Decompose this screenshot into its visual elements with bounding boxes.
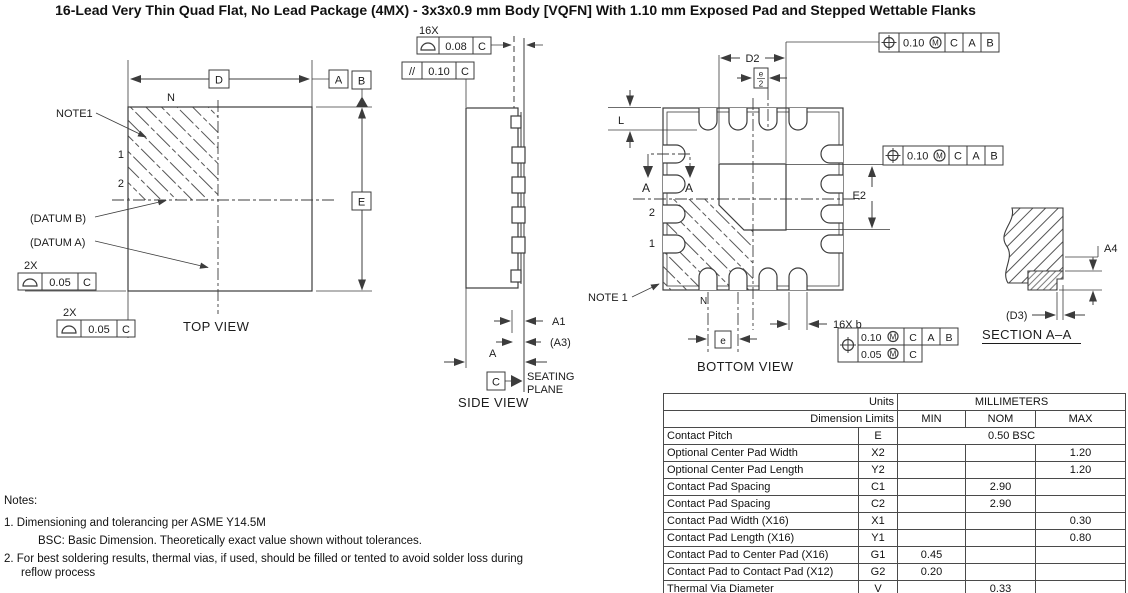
cell-span-value: 0.50 BSC [898, 428, 1126, 445]
position-tolerance-frame-pads: 0.10 M C A B 0.05 M C [838, 328, 958, 362]
tol-datum: C [950, 38, 958, 50]
cell-name: Optional Center Pad Length [664, 462, 859, 479]
tol-value: 0.05 [861, 349, 882, 361]
datum-b-ref: (DATUM B) [30, 213, 86, 225]
tol-datum: B [945, 332, 952, 344]
dimension-limits-header: Dimension Limits [664, 411, 898, 428]
qty-label: 2X [24, 260, 38, 272]
cell-name: Thermal Via Diameter [664, 581, 859, 593]
dimension-table: Units MILLIMETERS Dimension Limits MIN N… [663, 393, 1126, 593]
tol-datum: C [954, 151, 962, 163]
tol-datum: B [986, 38, 993, 50]
half-pitch-den: 2 [759, 80, 764, 89]
tol-value: 0.05 [88, 324, 109, 336]
seating-plane-label-1: SEATING [527, 371, 574, 383]
lead-end [511, 116, 521, 128]
table-row: Contact Pad to Contact Pad (X12) G2 0.20 [664, 564, 1126, 581]
cell-max: 1.20 [1036, 462, 1126, 479]
fcf-cell [417, 37, 439, 54]
cell-max [1036, 564, 1126, 581]
qty-label: 2X [63, 307, 77, 319]
tol-datum: A [968, 38, 976, 50]
fcf-cell [18, 273, 42, 290]
tol-value: 0.10 [907, 151, 928, 163]
datum-a-leader [95, 241, 208, 268]
datum-a-ref: (DATUM A) [30, 237, 85, 249]
cell-max: 1.20 [1036, 445, 1126, 462]
datum-b-triangle-icon [356, 97, 368, 108]
table-row: Optional Center Pad Length Y2 1.20 [664, 462, 1126, 479]
cell-name: Optional Center Pad Width [664, 445, 859, 462]
datum-a-label: A [335, 75, 343, 87]
cell-name: Contact Pad to Contact Pad (X12) [664, 564, 859, 581]
note-item-1: 1. Dimensioning and tolerancing per ASME… [4, 514, 604, 532]
cell-nom [966, 530, 1036, 547]
dim-a-label: A [489, 348, 497, 360]
contact-pad [821, 205, 843, 223]
svg-text:M: M [936, 152, 943, 161]
extension-lines-b [789, 292, 807, 330]
tol-value: 0.10 [861, 332, 882, 344]
tol-datum: C [122, 324, 130, 336]
note-item-2-cont: reflow process [4, 566, 604, 580]
datum-b-label: B [358, 76, 365, 88]
cell-nom: 2.90 [966, 496, 1036, 513]
tol-datum: C [461, 66, 469, 78]
dim-a1-label: A1 [552, 316, 565, 328]
top-view: D A B E N 1 2 NOTE1 (DATUM B) (DATUM A) [18, 60, 372, 338]
lead [512, 177, 525, 193]
position-tolerance-frame-right: 0.10 M C A B [883, 146, 1003, 165]
contact-pad [789, 268, 807, 290]
tol-datum: C [83, 277, 91, 289]
contact-pad [699, 268, 717, 290]
half-pitch-num: e [759, 70, 764, 79]
tol-datum: C [478, 41, 486, 53]
svg-text:M: M [890, 333, 897, 342]
cell-min [898, 479, 966, 496]
table-row: Thermal Via Diameter V 0.33 [664, 581, 1126, 593]
notes-heading: Notes: [4, 492, 604, 510]
contact-pad [663, 205, 685, 223]
contact-pad [821, 145, 843, 163]
seating-plane-label-2: PLANE [527, 384, 563, 396]
cell-max [1036, 581, 1126, 593]
table-row: Optional Center Pad Width X2 1.20 [664, 445, 1126, 462]
cell-symbol: G1 [859, 547, 898, 564]
tol-value: 0.10 [428, 66, 449, 78]
stepped-lead-cross-section [1028, 271, 1063, 290]
cell-max [1036, 496, 1126, 513]
dim-e-label: E [358, 197, 365, 209]
profile-tolerance-frame-left: 2X 0.05 C [57, 307, 135, 337]
section-arrow-icon [685, 166, 695, 178]
table-row: Contact Pad Length (X16) Y1 0.80 [664, 530, 1126, 547]
cell-name: Contact Pad Spacing [664, 479, 859, 496]
note1-ref: NOTE1 [56, 108, 93, 120]
pitch-label: e [720, 336, 726, 347]
bottom-view: D2 e 2 0.10 [588, 33, 1003, 374]
cell-symbol: C2 [859, 496, 898, 513]
cell-min [898, 496, 966, 513]
table-header-row: Units MILLIMETERS [664, 394, 1126, 411]
lead [512, 237, 525, 253]
svg-text:M: M [890, 350, 897, 359]
contact-pad [821, 175, 843, 193]
lead [512, 147, 525, 163]
package-outline-side [466, 108, 518, 288]
note-item-2: 2. For best soldering results, thermal v… [4, 552, 604, 566]
contact-pad [729, 268, 747, 290]
tol-datum: B [990, 151, 997, 163]
cell-min [898, 445, 966, 462]
contact-pad [789, 108, 807, 130]
parallelism-tolerance-frame: // 0.10 C [402, 62, 474, 79]
pin1-label: 1 [649, 238, 655, 250]
table-row: Contact Pad Width (X16) X1 0.30 [664, 513, 1126, 530]
position-tolerance-frame-top: 0.10 M C A B [879, 33, 999, 52]
profile-tolerance-frame-16x: 0.08 C [417, 37, 491, 54]
section-view-caption: SECTION A–A [982, 327, 1072, 342]
fcf-cell [57, 320, 81, 337]
cell-symbol: Y1 [859, 530, 898, 547]
tol-value: 0.05 [49, 277, 70, 289]
pin-n-label: N [167, 92, 175, 104]
dim-a3-label: (A3) [550, 337, 571, 349]
side-view: 16X 0.08 C // 0.10 C [402, 25, 574, 410]
mechanical-drawing: D A B E N 1 2 NOTE1 (DATUM B) (DATUM A) [0, 0, 1128, 420]
lead [512, 207, 525, 223]
contact-pad [663, 235, 685, 253]
side-view-caption: SIDE VIEW [458, 395, 529, 410]
pin2-label: 2 [118, 178, 124, 190]
cell-nom [966, 445, 1036, 462]
cell-min [898, 513, 966, 530]
table-row: Contact Pad to Center Pad (X16) G1 0.45 [664, 547, 1126, 564]
svg-text:M: M [932, 39, 939, 48]
cell-nom [966, 547, 1036, 564]
nom-header: NOM [966, 411, 1036, 428]
cell-name: Contact Pad Width (X16) [664, 513, 859, 530]
lead-end [511, 270, 521, 282]
tol-value: 0.10 [903, 38, 924, 50]
cell-nom: 0.33 [966, 581, 1036, 593]
datum-c-triangle-icon [511, 375, 523, 387]
datum-c-label: C [492, 377, 500, 389]
cell-symbol: V [859, 581, 898, 593]
cell-min [898, 530, 966, 547]
table-row: Contact Pitch E 0.50 BSC [664, 428, 1126, 445]
profile-tolerance-frame-top: 2X 0.05 C [18, 260, 96, 290]
cell-symbol: G2 [859, 564, 898, 581]
section-view: A4 (D3) SECTION A–A [982, 208, 1117, 344]
cell-nom [966, 462, 1036, 479]
pin1-hatch-area [128, 107, 218, 200]
table-row: Contact Pad Spacing C1 2.90 [664, 479, 1126, 496]
table-row: Contact Pad Spacing C2 2.90 [664, 496, 1126, 513]
cell-nom [966, 513, 1036, 530]
cell-name: Contact Pitch [664, 428, 859, 445]
cell-symbol: X1 [859, 513, 898, 530]
cell-name: Contact Pad Spacing [664, 496, 859, 513]
cell-min: 0.45 [898, 547, 966, 564]
table-header-row: Dimension Limits MIN NOM MAX [664, 411, 1126, 428]
pin1-label: 1 [118, 149, 124, 161]
dim-d-label: D [215, 75, 223, 87]
dim-e2-label: E2 [853, 190, 866, 202]
cell-max: 0.80 [1036, 530, 1126, 547]
pin-n-label: N [700, 296, 707, 307]
contact-pad [759, 268, 777, 290]
cell-max [1036, 547, 1126, 564]
min-header: MIN [898, 411, 966, 428]
units-header: Units [664, 394, 898, 411]
tol-datum: C [909, 349, 917, 361]
cell-max: 0.30 [1036, 513, 1126, 530]
section-arrow-icon [643, 166, 653, 178]
dim-a4-label: A4 [1104, 243, 1117, 255]
tol-datum: A [972, 151, 980, 163]
cell-min [898, 462, 966, 479]
notes-block: Notes: 1. Dimensioning and tolerancing p… [4, 492, 604, 580]
contact-pad [663, 175, 685, 193]
cell-min [898, 581, 966, 593]
section-label-a-left: A [642, 181, 650, 195]
cell-symbol: E [859, 428, 898, 445]
cell-nom: 2.90 [966, 479, 1036, 496]
tol-value: 0.08 [445, 41, 466, 53]
cell-min: 0.20 [898, 564, 966, 581]
cell-name: Contact Pad to Center Pad (X16) [664, 547, 859, 564]
contact-pad [821, 235, 843, 253]
cell-max [1036, 479, 1126, 496]
qty-16x-label: 16X [419, 25, 439, 37]
package-drawing-page: 16-Lead Very Thin Quad Flat, No Lead Pac… [0, 0, 1128, 593]
cell-symbol: Y2 [859, 462, 898, 479]
top-view-caption: TOP VIEW [183, 319, 250, 334]
cell-symbol: C1 [859, 479, 898, 496]
dim-d3-label: (D3) [1006, 310, 1027, 322]
note1-ref: NOTE 1 [588, 292, 628, 304]
max-header: MAX [1036, 411, 1126, 428]
extension-lines-a4 [1059, 271, 1102, 290]
contact-pad [699, 108, 717, 130]
cell-name: Contact Pad Length (X16) [664, 530, 859, 547]
note-item-1-sub: BSC: Basic Dimension. Theoretically exac… [4, 532, 604, 550]
dim-d2-label: D2 [745, 53, 759, 65]
millimeters-header: MILLIMETERS [898, 394, 1126, 411]
tol-datum: A [927, 332, 934, 344]
a4-leader [1065, 246, 1098, 257]
pin2-label: 2 [649, 207, 655, 219]
section-label-a-right: A [685, 181, 693, 195]
cell-nom [966, 564, 1036, 581]
cell-symbol: X2 [859, 445, 898, 462]
note1-leader [632, 284, 659, 297]
datum-b-leader [95, 201, 166, 218]
bottom-view-caption: BOTTOM VIEW [697, 359, 794, 374]
tol-datum: C [909, 332, 917, 344]
contact-pad [729, 108, 747, 130]
dim-l-label: L [618, 115, 624, 127]
parallelism-icon: // [409, 66, 416, 78]
